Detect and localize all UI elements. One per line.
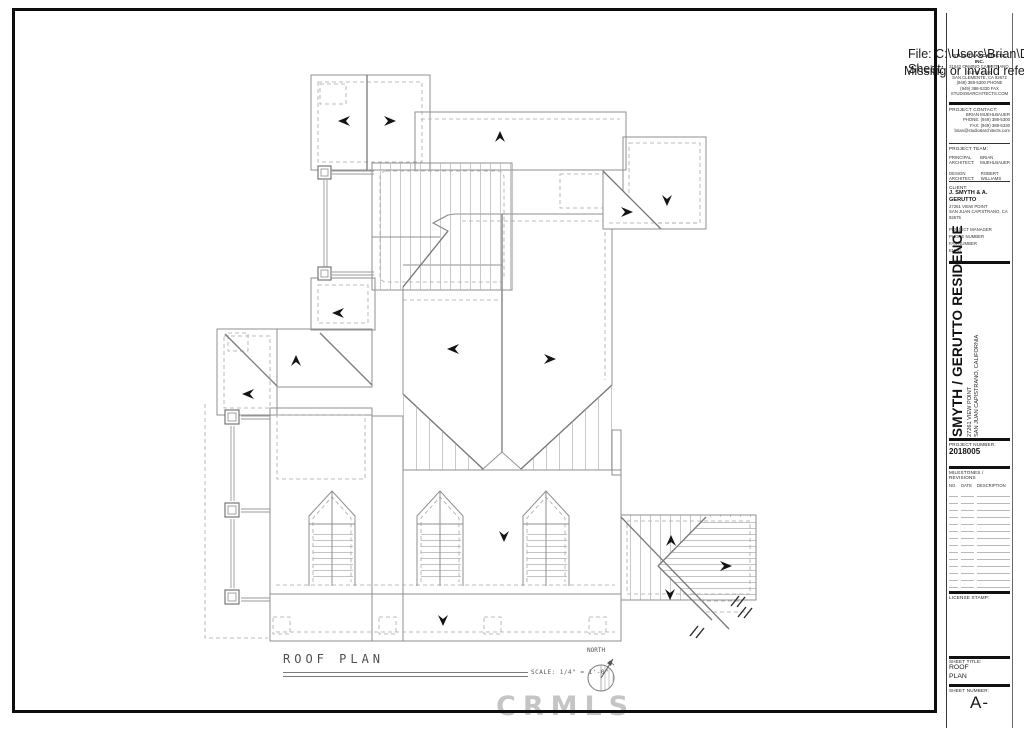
revision-cell xyxy=(961,504,974,511)
revision-cell xyxy=(949,539,958,546)
col-no: NO. xyxy=(949,483,961,488)
revision-cell xyxy=(961,525,974,532)
revision-cell xyxy=(961,497,974,504)
team-name: ROBERT WILLIAMS xyxy=(981,171,1010,181)
revision-cell xyxy=(977,497,1010,504)
team-row: DESIGN ARCHITECT: ROBERT WILLIAMS xyxy=(949,171,1010,181)
overlay-error-text: Missing or invalid refe xyxy=(904,64,1024,78)
revision-cell xyxy=(977,490,1010,497)
revision-row xyxy=(949,567,1010,574)
revision-cell xyxy=(961,490,974,497)
team-role: DESIGN ARCHITECT: xyxy=(949,171,981,181)
sheet-number-section: SHEET NUMBER: A- xyxy=(949,688,1010,713)
client-section: CLIENT: J. SMYTH & A. GERUTTO 27261 VIEW… xyxy=(949,185,1010,220)
revision-cell xyxy=(961,546,974,553)
separator xyxy=(949,684,1010,687)
client-address2: SAN JUAN CAPISTRANO, CA 92675 xyxy=(949,209,1010,220)
sheet-border xyxy=(12,8,937,713)
col-date: DATE xyxy=(961,483,977,488)
revisions-columns: NO. DATE DESCRIPTION xyxy=(949,483,1010,488)
revision-cell xyxy=(949,525,958,532)
overlay-file-path: File: C:\Users\Brian\D xyxy=(908,47,1024,61)
revision-cell xyxy=(961,511,974,518)
project-team-section: PROJECT TEAM: PRINCIPAL ARCHITECT: BRIAN… xyxy=(949,146,1010,181)
project-number-value: 2018005 xyxy=(949,447,1010,456)
project-address: 27261 VIEW POINT SAN JUAN CAPISTRANO, CA… xyxy=(967,265,981,437)
project-number-section: PROJECT NUMBER: 2018005 xyxy=(949,442,1010,456)
team-role: PRINCIPAL ARCHITECT: xyxy=(949,155,980,165)
project-address2: SAN JUAN CAPISTRANO, CALIFORNIA xyxy=(974,265,981,437)
sheet-title-line1: ROOF xyxy=(949,664,1010,673)
revision-cell xyxy=(949,581,958,588)
revision-cell xyxy=(977,504,1010,511)
revision-cell xyxy=(977,518,1010,525)
revision-cell xyxy=(949,504,958,511)
revision-cell xyxy=(977,567,1010,574)
project-title-vertical: SMYTH / GERUTTO RESIDENCE 27261 VIEW POI… xyxy=(950,265,981,437)
separator xyxy=(949,181,1010,182)
license-stamp-label: LICENSE STAMP: xyxy=(949,595,1010,600)
revision-row xyxy=(949,581,1010,588)
revision-row xyxy=(949,539,1010,546)
revision-row xyxy=(949,504,1010,511)
revision-row xyxy=(949,560,1010,567)
revision-row xyxy=(949,511,1010,518)
revision-cell xyxy=(977,525,1010,532)
sheet-title-line2: PLAN xyxy=(949,673,1010,682)
sheet-title-section: SHEET TITLE: ROOF PLAN xyxy=(949,659,1010,681)
revision-cell xyxy=(949,532,958,539)
separator xyxy=(949,591,1010,594)
client-name: J. SMYTH & A. GERUTTO xyxy=(949,190,1010,204)
license-section: LICENSE STAMP: xyxy=(949,595,1010,600)
revision-row xyxy=(949,490,1010,497)
revision-cell xyxy=(961,581,974,588)
revision-cell xyxy=(949,518,958,525)
project-title: SMYTH / GERUTTO RESIDENCE xyxy=(950,265,965,437)
revision-row xyxy=(949,574,1010,581)
project-address1: 27261 VIEW POINT xyxy=(967,265,974,437)
revision-row xyxy=(949,518,1010,525)
separator xyxy=(949,466,1010,469)
revision-row xyxy=(949,532,1010,539)
team-row: PRINCIPAL ARCHITECT: BRIAN MUEHLBAUER xyxy=(949,155,1010,165)
separator xyxy=(949,102,1010,105)
revision-cell xyxy=(977,539,1010,546)
revision-cell xyxy=(949,546,958,553)
revision-row xyxy=(949,525,1010,532)
revision-cell xyxy=(949,560,958,567)
title-block: STUDIO 6 ARCHITECTS, INC. 31642 CAMINO C… xyxy=(946,13,1013,728)
revision-cell xyxy=(977,546,1010,553)
revisions-label: MILESTONES / REVISIONS xyxy=(949,470,1010,480)
revision-row xyxy=(949,546,1010,553)
revision-row xyxy=(949,553,1010,560)
revision-cell xyxy=(961,560,974,567)
revision-cell xyxy=(977,553,1010,560)
revision-cell xyxy=(977,581,1010,588)
revision-cell xyxy=(961,532,974,539)
revision-cell xyxy=(949,567,958,574)
screenshot-root: { "overlay": { "file_line": "File: C:\\U… xyxy=(0,0,1024,731)
revision-cell xyxy=(977,511,1010,518)
revision-cell xyxy=(977,532,1010,539)
firm-website: STUDIO6ARCHITECTS.COM xyxy=(949,91,1010,96)
contact-email: brian@studio6architects.com xyxy=(949,128,1010,133)
revision-cell xyxy=(961,574,974,581)
col-description: DESCRIPTION xyxy=(977,483,1006,488)
separator xyxy=(949,438,1010,441)
revision-cell xyxy=(949,511,958,518)
revision-cell xyxy=(977,560,1010,567)
revisions-section: MILESTONES / REVISIONS NO. DATE DESCRIPT… xyxy=(949,470,1010,588)
revision-cell xyxy=(961,539,974,546)
revision-cell xyxy=(977,574,1010,581)
revision-cell xyxy=(961,553,974,560)
revision-cell xyxy=(949,574,958,581)
revisions-rows xyxy=(949,490,1010,588)
revision-cell xyxy=(949,490,958,497)
project-team-label: PROJECT TEAM: xyxy=(949,146,1010,151)
sheet-number-value: A- xyxy=(949,693,1010,713)
revision-cell xyxy=(949,553,958,560)
team-name: BRIAN MUEHLBAUER xyxy=(980,155,1010,165)
revision-row xyxy=(949,497,1010,504)
revision-cell xyxy=(961,567,974,574)
revision-cell xyxy=(961,518,974,525)
revision-cell xyxy=(949,497,958,504)
project-contact-section: PROJECT CONTACT: BRIAN MUEHLBAUER PHONE:… xyxy=(949,107,1010,134)
separator xyxy=(949,143,1010,144)
